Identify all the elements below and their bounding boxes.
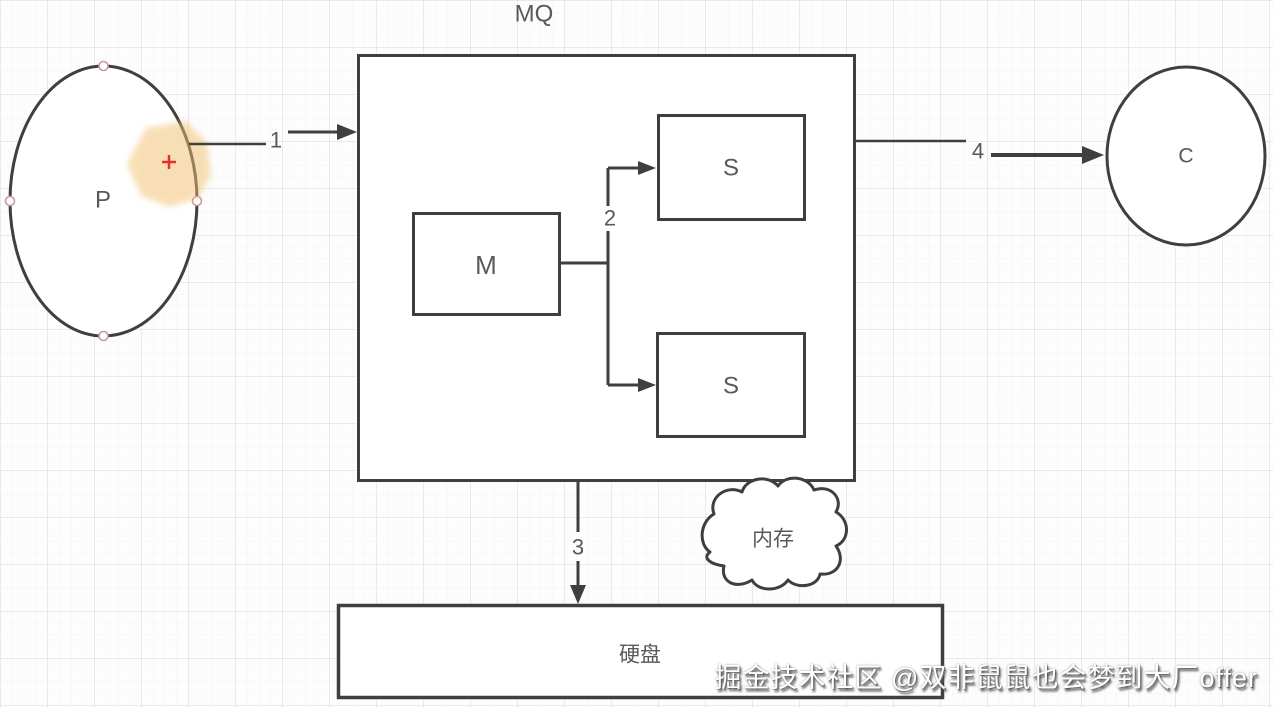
edge-step1[interactable]: 1 bbox=[189, 124, 357, 153]
diagram-canvas[interactable]: MQ P M S bbox=[0, 0, 1273, 707]
slave-bottom-node[interactable]: S bbox=[658, 334, 805, 437]
master-node[interactable]: M bbox=[414, 214, 560, 315]
watermark: 掘金技术社区 @双非鼠鼠也会梦到大厂offer bbox=[715, 656, 1258, 695]
edge-step4-label: 4 bbox=[972, 139, 984, 164]
drawing-canvas[interactable]: MQ P M S bbox=[0, 0, 1273, 707]
master-label: M bbox=[475, 250, 497, 280]
edge-step4[interactable]: 4 bbox=[855, 139, 1104, 165]
edge-step1-arrowhead[interactable] bbox=[337, 124, 357, 140]
edge-step1-label: 1 bbox=[270, 128, 282, 153]
slave-top-label: S bbox=[723, 155, 739, 182]
selection-handle-left[interactable] bbox=[6, 197, 15, 206]
edge-step3-label: 3 bbox=[572, 535, 584, 560]
mq-container-label: MQ bbox=[515, 1, 554, 28]
consumer-node[interactable]: C bbox=[1107, 67, 1265, 245]
consumer-label: C bbox=[1178, 145, 1193, 168]
memory-label: 内存 bbox=[752, 528, 794, 551]
disk-label: 硬盘 bbox=[619, 644, 661, 667]
edge-step3-arrowhead[interactable] bbox=[570, 585, 586, 604]
memory-cloud-node[interactable]: 内存 bbox=[702, 478, 846, 589]
slave-top-node[interactable]: S bbox=[659, 116, 805, 220]
slave-bottom-label: S bbox=[723, 373, 739, 400]
selection-handle-top[interactable] bbox=[99, 62, 108, 71]
edge-step4-arrowhead[interactable] bbox=[1082, 146, 1104, 164]
selection-handle-bottom[interactable] bbox=[99, 332, 108, 341]
producer-label: P bbox=[95, 187, 111, 214]
edge-step3[interactable]: 3 bbox=[570, 481, 586, 604]
edge-step2-label: 2 bbox=[604, 206, 616, 231]
